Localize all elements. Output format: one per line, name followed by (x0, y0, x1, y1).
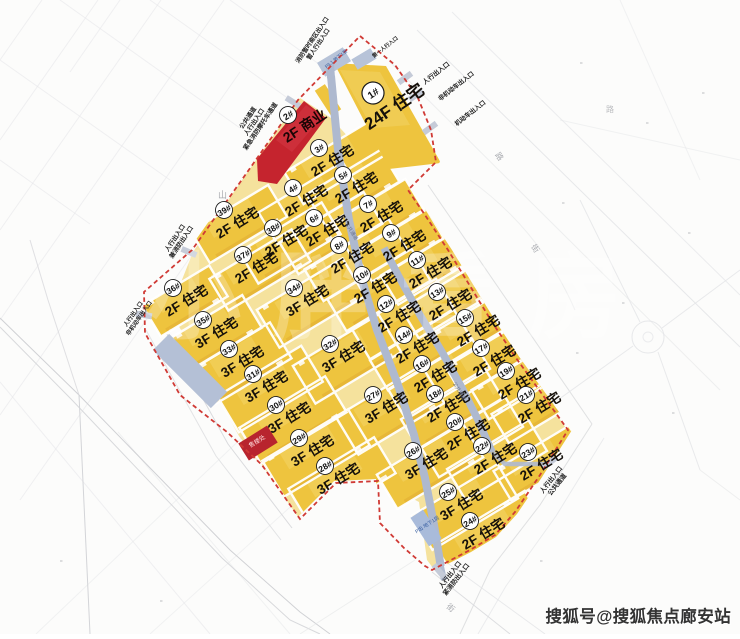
svg-text:搜狐号@搜狐焦点廊安站: 搜狐号@搜狐焦点廊安站 (546, 606, 732, 626)
svg-text:山: 山 (218, 190, 227, 200)
svg-text:路: 路 (606, 104, 614, 114)
